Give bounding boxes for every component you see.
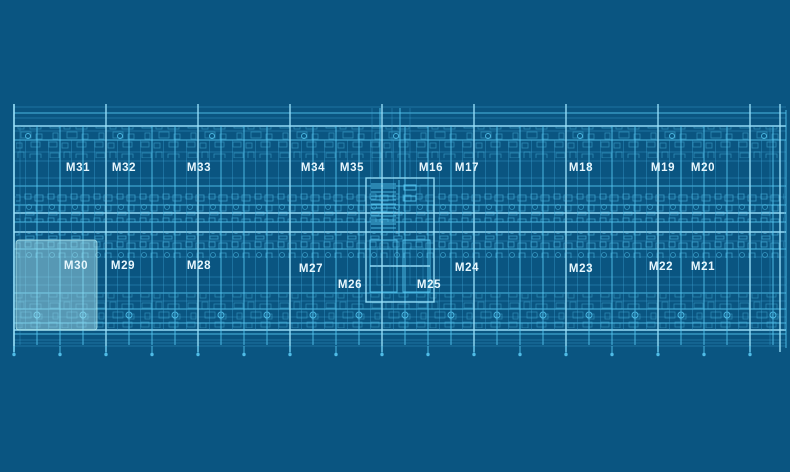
room-label[interactable]: M23 — [569, 263, 593, 275]
floorplan-canvas: M31 M32 M33 M34 M35 M16 M17 M18 M19 M20 … — [0, 0, 790, 472]
room-label[interactable]: M16 — [419, 162, 443, 174]
room-label[interactable]: M24 — [455, 262, 479, 274]
room-label[interactable]: M18 — [569, 162, 593, 174]
room-label[interactable]: M35 — [340, 162, 364, 174]
room-label[interactable]: M34 — [301, 162, 325, 174]
room-label[interactable]: M21 — [691, 261, 715, 273]
blueprint-stage: M31 M32 M33 M34 M35 M16 M17 M18 M19 M20 … — [0, 0, 790, 472]
room-label[interactable]: M20 — [691, 162, 715, 174]
room-label[interactable]: M26 — [338, 279, 362, 291]
room-label[interactable]: M25 — [417, 279, 441, 291]
room-label[interactable]: M27 — [299, 263, 323, 275]
room-label[interactable]: M22 — [649, 261, 673, 273]
room-label[interactable]: M31 — [66, 162, 90, 174]
room-label[interactable]: M29 — [111, 260, 135, 272]
room-label[interactable]: M32 — [112, 162, 136, 174]
room-label[interactable]: M17 — [455, 162, 479, 174]
room-label-selected[interactable]: M30 — [64, 260, 88, 272]
selected-room-highlight — [16, 240, 97, 330]
room-label[interactable]: M28 — [187, 260, 211, 272]
room-label[interactable]: M19 — [651, 162, 675, 174]
room-label[interactable]: M33 — [187, 162, 211, 174]
